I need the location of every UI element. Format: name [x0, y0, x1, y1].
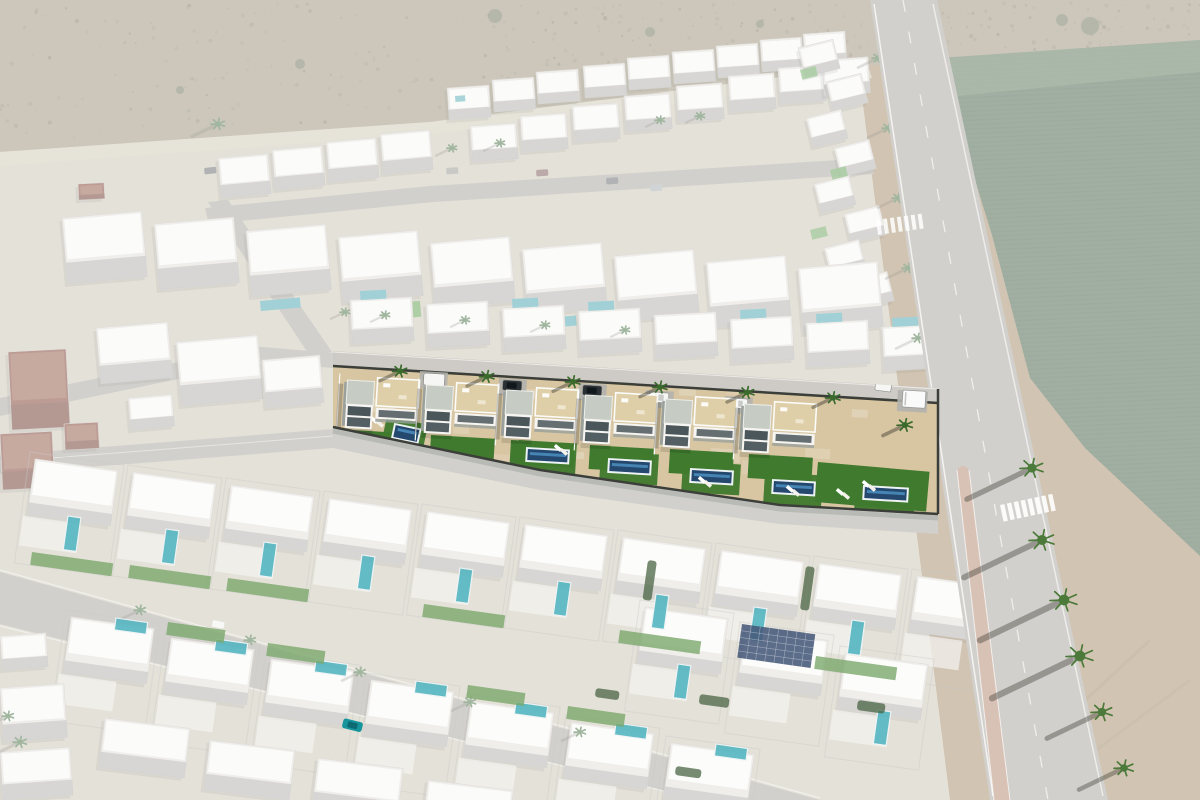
window-band — [426, 422, 449, 432]
flat-roof — [664, 399, 692, 425]
window-band — [744, 430, 767, 440]
window-band — [585, 421, 608, 431]
window-band — [506, 416, 529, 426]
scene-canvas — [0, 0, 1200, 800]
aerial-development-render — [0, 0, 1200, 800]
window-band — [665, 436, 688, 446]
window-band — [585, 432, 608, 442]
roof-terrace — [773, 402, 817, 432]
roof-terrace — [376, 378, 420, 408]
flat-roof — [743, 404, 771, 430]
flat-roof — [584, 395, 612, 421]
roof-terrace — [535, 388, 579, 418]
flat-roof — [425, 385, 453, 411]
dark-car — [502, 380, 522, 391]
dark-car — [582, 385, 602, 396]
box-truck — [902, 390, 926, 408]
window-band — [665, 425, 688, 435]
flat-roof — [346, 380, 374, 406]
window-band — [506, 427, 529, 437]
window-band — [347, 406, 370, 416]
window-band — [426, 411, 449, 421]
white-car — [423, 373, 445, 386]
flat-roof — [505, 390, 533, 416]
window-band — [744, 441, 767, 451]
window-band — [347, 417, 370, 427]
roof-terrace — [614, 393, 658, 423]
roof-terrace — [455, 383, 499, 413]
